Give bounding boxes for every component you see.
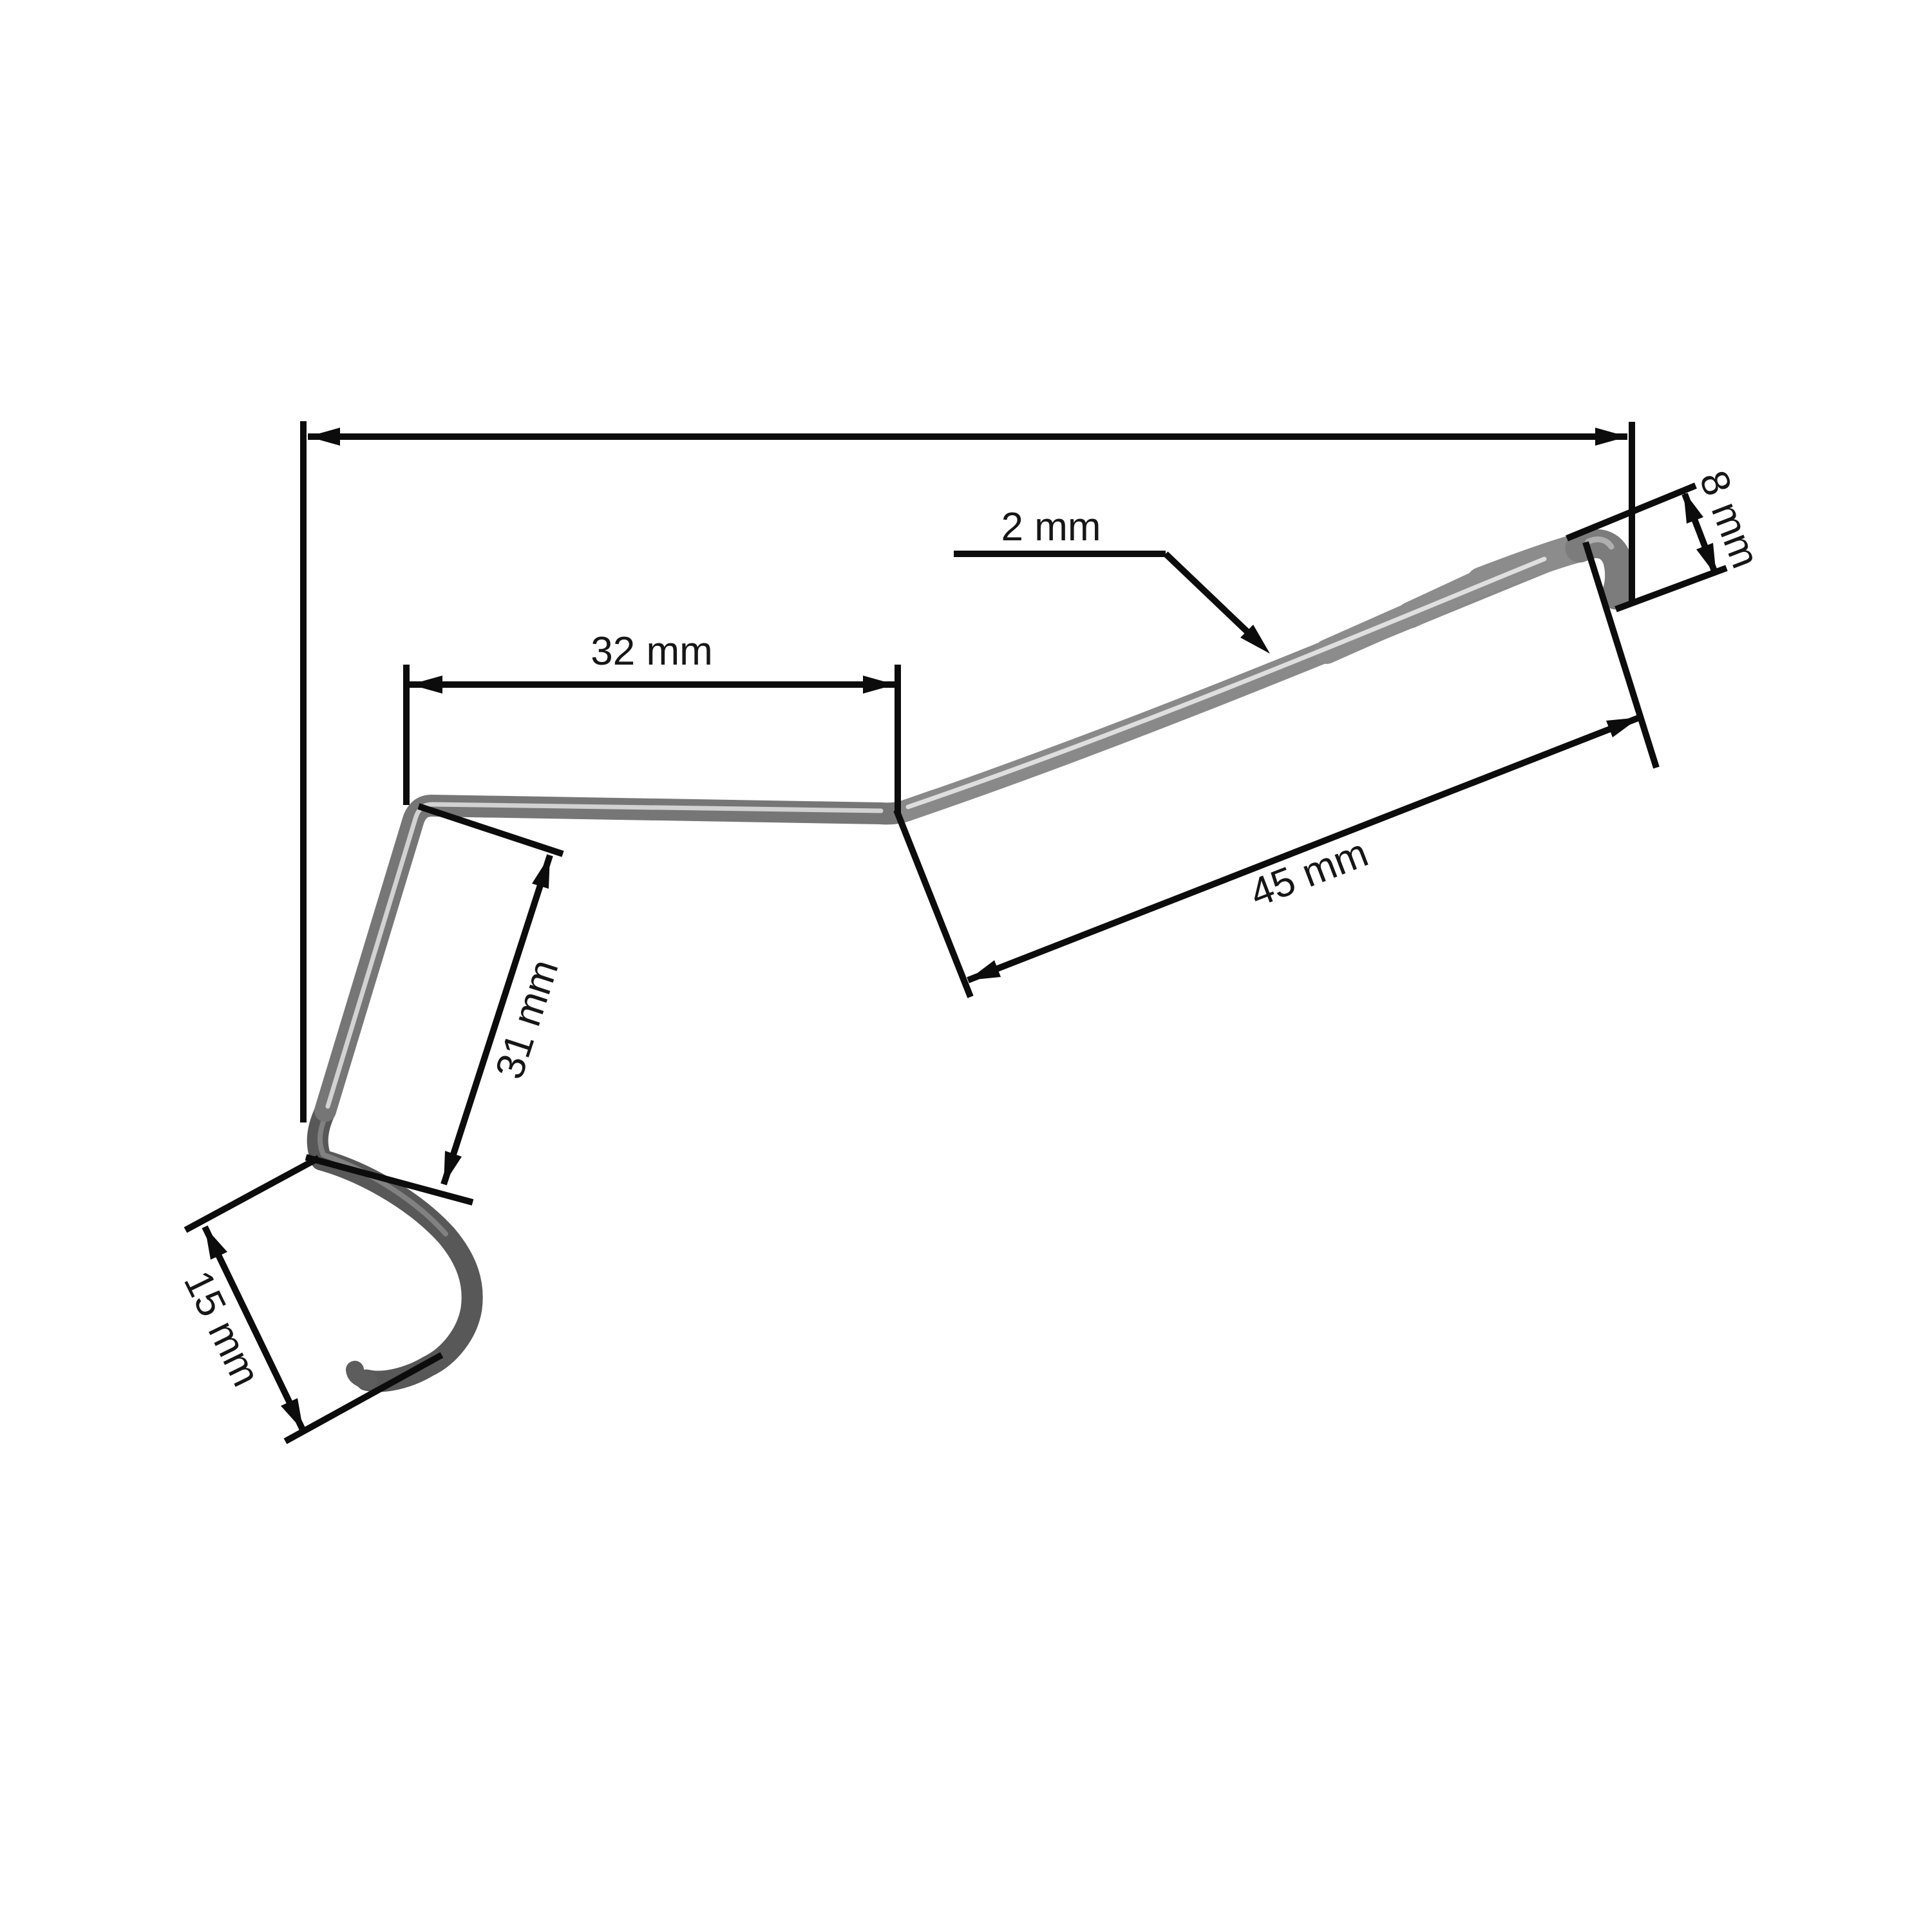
- svg-text:32 mm: 32 mm: [591, 629, 712, 674]
- svg-text:2 mm: 2 mm: [1001, 505, 1101, 549]
